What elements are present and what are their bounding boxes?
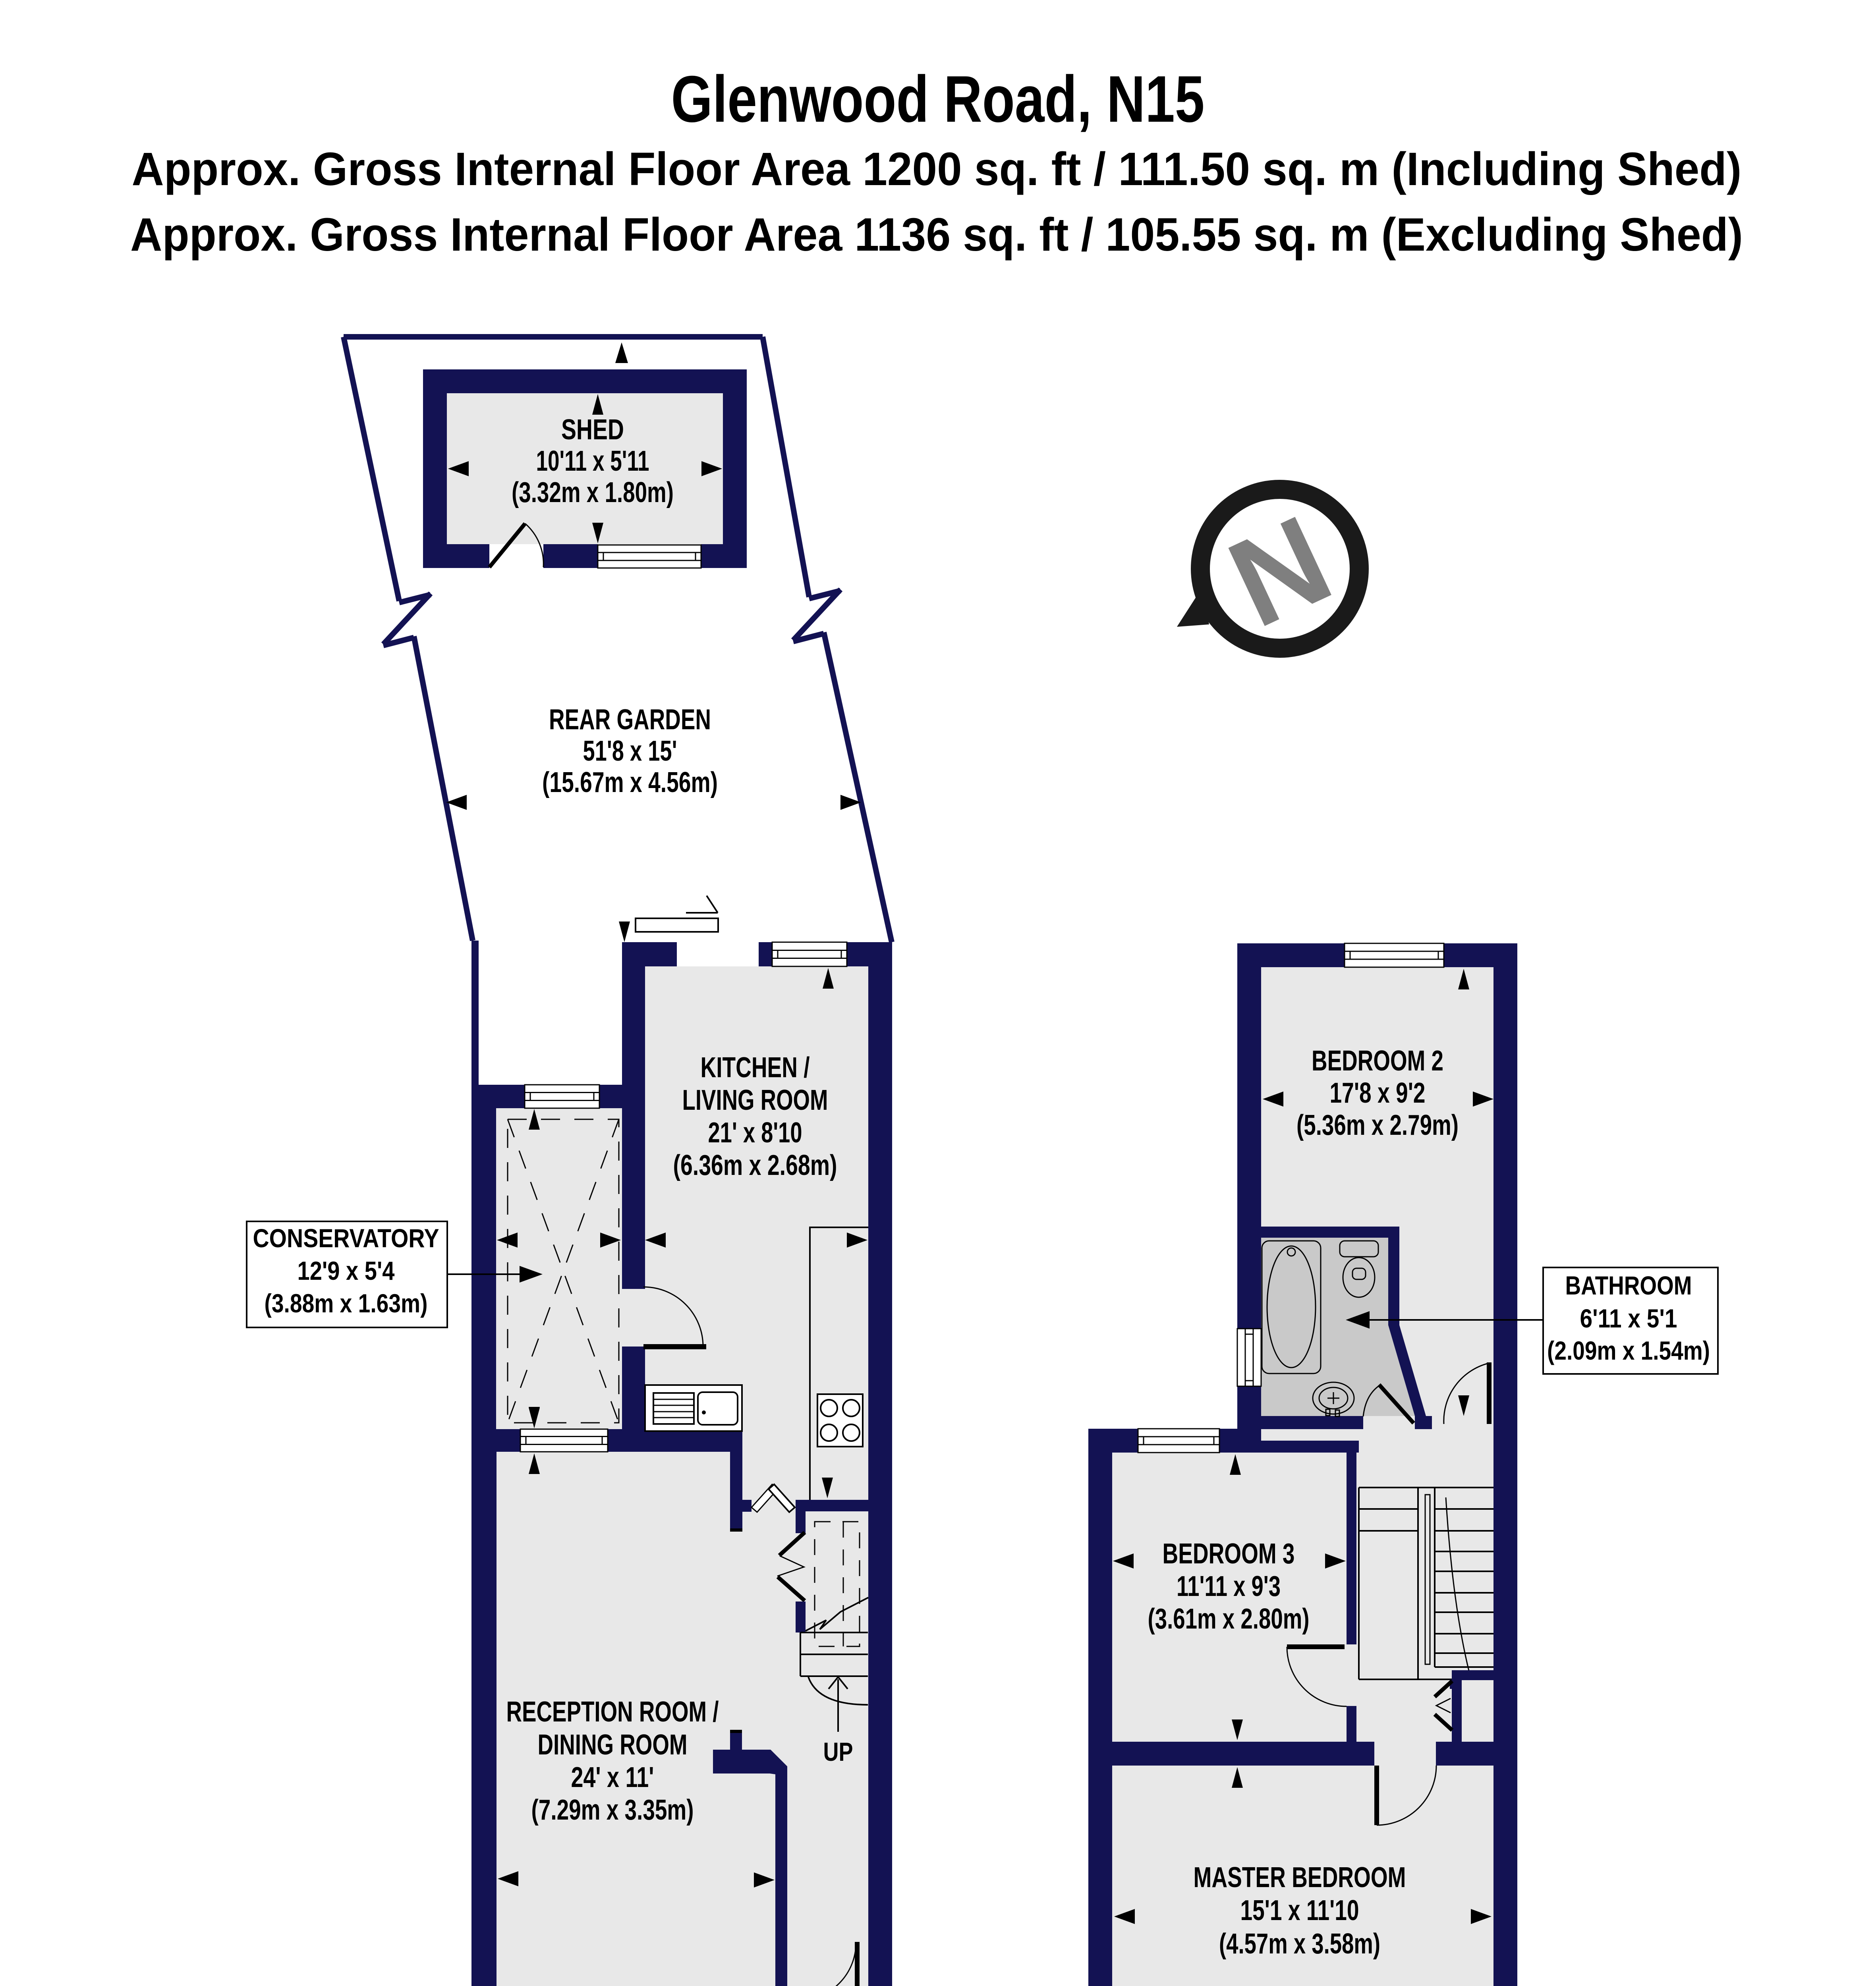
svg-text:(3.61m x 2.80m): (3.61m x 2.80m) (1148, 1603, 1310, 1635)
svg-text:KITCHEN /: KITCHEN / (701, 1052, 810, 1084)
svg-text:SHED: SHED (561, 414, 624, 446)
svg-text:Approx. Gross Internal Floor A: Approx. Gross Internal Floor Area 1200 s… (132, 143, 1742, 195)
svg-text:(15.67m x 4.56m): (15.67m x 4.56m) (542, 767, 718, 798)
svg-text:11'11 x 9'3: 11'11 x 9'3 (1177, 1571, 1281, 1602)
svg-text:BEDROOM 3: BEDROOM 3 (1163, 1538, 1295, 1570)
svg-text:6'11 x 5'1: 6'11 x 5'1 (1580, 1304, 1677, 1333)
svg-text:MASTER BEDROOM: MASTER BEDROOM (1194, 1862, 1406, 1893)
svg-text:15'1 x 11'10: 15'1 x 11'10 (1240, 1895, 1359, 1926)
svg-text:Glenwood Road, N15: Glenwood Road, N15 (671, 63, 1205, 136)
svg-text:UP: UP (823, 1737, 853, 1766)
svg-text:LIVING ROOM: LIVING ROOM (682, 1084, 828, 1116)
svg-text:Approx. Gross Internal Floor A: Approx. Gross Internal Floor Area 1136 s… (130, 209, 1743, 261)
svg-text:21' x 8'10: 21' x 8'10 (708, 1117, 802, 1149)
svg-text:RECEPTION ROOM /: RECEPTION ROOM / (506, 1696, 719, 1728)
svg-text:BATHROOM: BATHROOM (1565, 1271, 1692, 1300)
svg-text:(4.57m x 3.58m): (4.57m x 3.58m) (1219, 1928, 1380, 1960)
svg-text:17'8 x 9'2: 17'8 x 9'2 (1330, 1077, 1426, 1109)
svg-text:10'11 x 5'11: 10'11 x 5'11 (536, 445, 649, 477)
svg-text:(6.36m x 2.68m): (6.36m x 2.68m) (673, 1149, 837, 1181)
svg-text:(7.29m x 3.35m): (7.29m x 3.35m) (531, 1794, 694, 1826)
svg-text:51'8 x 15': 51'8 x 15' (583, 735, 677, 767)
svg-text:24' x 11': 24' x 11' (571, 1762, 654, 1793)
svg-text:CONSERVATORY: CONSERVATORY (253, 1223, 439, 1253)
svg-text:DINING ROOM: DINING ROOM (538, 1729, 688, 1761)
svg-text:BEDROOM 2: BEDROOM 2 (1312, 1045, 1443, 1077)
svg-text:(5.36m x 2.79m): (5.36m x 2.79m) (1296, 1109, 1459, 1141)
svg-text:(2.09m x 1.54m): (2.09m x 1.54m) (1547, 1336, 1710, 1365)
svg-text:(3.88m x 1.63m): (3.88m x 1.63m) (265, 1289, 428, 1318)
svg-text:(3.32m x 1.80m): (3.32m x 1.80m) (512, 477, 674, 508)
svg-text:REAR GARDEN: REAR GARDEN (549, 704, 711, 736)
svg-text:12'9 x 5'4: 12'9 x 5'4 (298, 1256, 395, 1285)
